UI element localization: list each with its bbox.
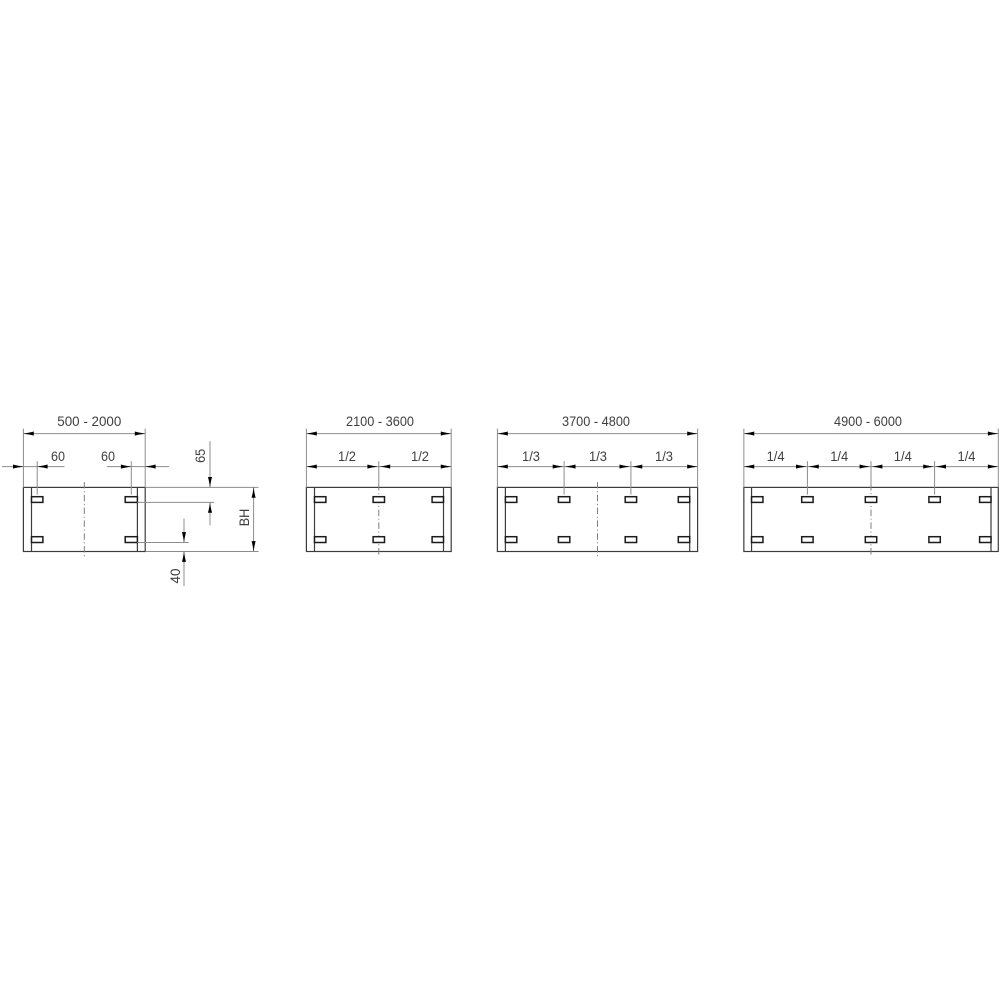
svg-text:40: 40 bbox=[167, 568, 183, 583]
svg-text:3700 - 4800: 3700 - 4800 bbox=[562, 413, 630, 429]
svg-text:500 - 2000: 500 - 2000 bbox=[57, 413, 121, 429]
svg-text:1/2: 1/2 bbox=[338, 448, 356, 464]
svg-text:4900 - 6000: 4900 - 6000 bbox=[834, 413, 902, 429]
svg-text:1/4: 1/4 bbox=[767, 448, 785, 464]
svg-text:1/3: 1/3 bbox=[522, 448, 540, 464]
svg-text:1/4: 1/4 bbox=[894, 448, 912, 464]
svg-text:1/3: 1/3 bbox=[589, 448, 607, 464]
svg-text:60: 60 bbox=[51, 448, 65, 464]
svg-text:BH: BH bbox=[236, 509, 252, 527]
svg-text:1/4: 1/4 bbox=[958, 448, 976, 464]
svg-text:1/3: 1/3 bbox=[655, 448, 673, 464]
svg-text:1/4: 1/4 bbox=[830, 448, 848, 464]
svg-text:2100 - 3600: 2100 - 3600 bbox=[346, 413, 414, 429]
svg-text:60: 60 bbox=[101, 448, 115, 464]
svg-text:65: 65 bbox=[192, 449, 208, 463]
svg-text:1/2: 1/2 bbox=[411, 448, 429, 464]
